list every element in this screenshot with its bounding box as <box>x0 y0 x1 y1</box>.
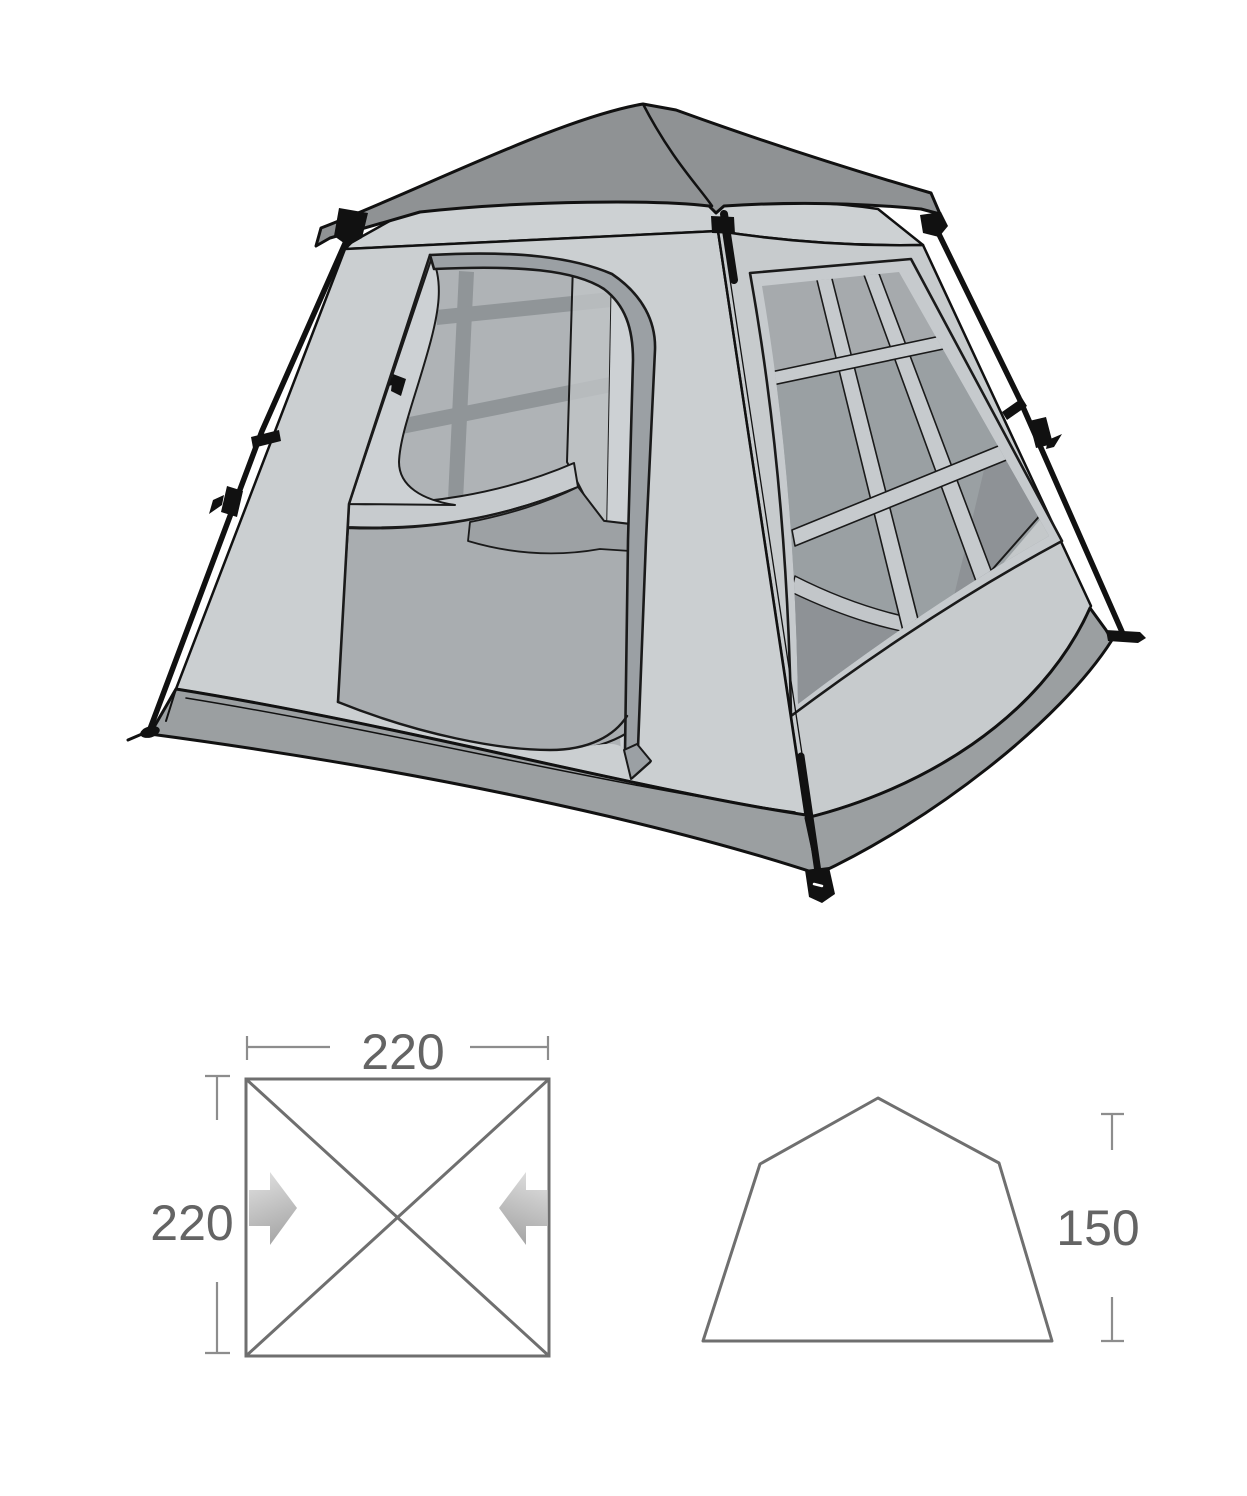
svg-text:150: 150 <box>1056 1200 1139 1256</box>
svg-text:220: 220 <box>150 1195 233 1251</box>
svg-text:220: 220 <box>361 1024 444 1080</box>
